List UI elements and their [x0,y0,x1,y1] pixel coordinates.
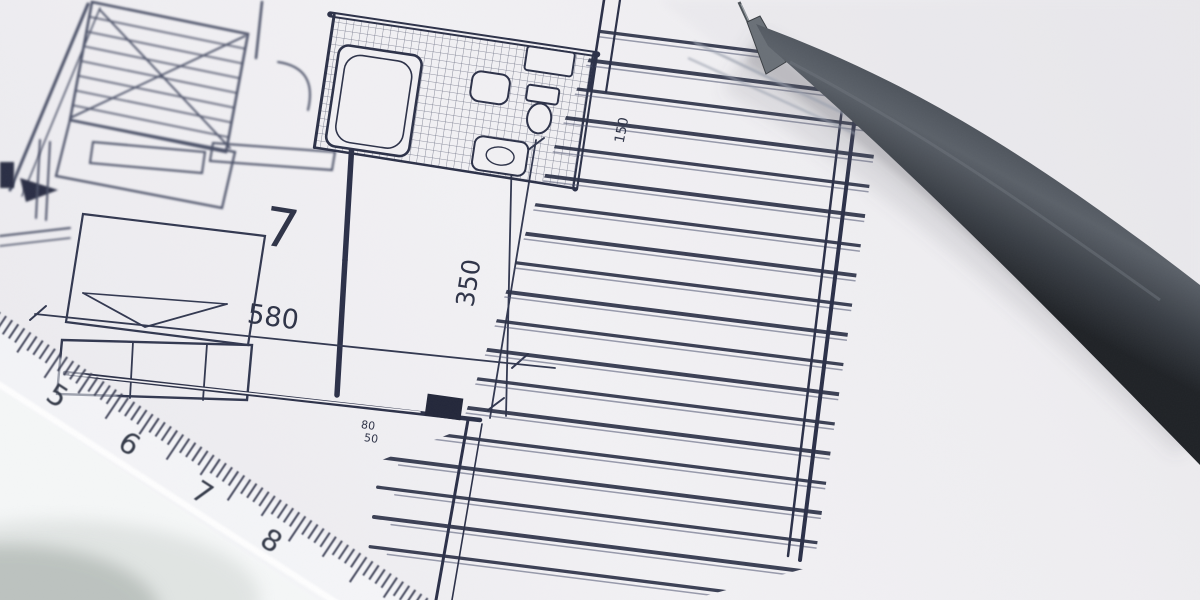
photo-stage: 7 580 350 150 80 50 5 6 7 8 [0,0,1200,600]
photo-grain-overlay [0,0,1200,600]
floor-plan-photo: 7 580 350 150 80 50 5 6 7 8 [0,0,1200,600]
